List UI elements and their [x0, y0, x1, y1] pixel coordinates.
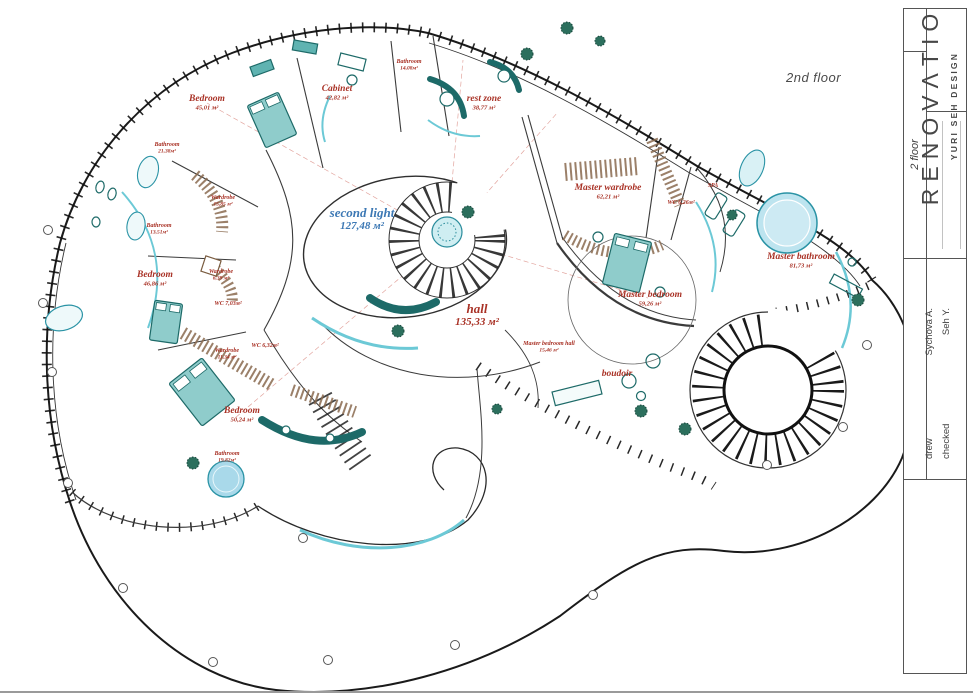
survey-marker — [44, 226, 53, 235]
survey-marker — [64, 479, 73, 488]
plant-icon — [392, 325, 404, 337]
floor-note: 2nd floor — [786, 70, 841, 85]
titleblock-drew-row: drew Sychova A. — [924, 266, 937, 471]
room-label: WC 6,32м² — [251, 343, 278, 349]
stair-column — [432, 217, 462, 247]
survey-marker — [39, 299, 48, 308]
room-label: Bathroom21,38м² — [153, 142, 179, 155]
room-label: WC 7,03м² — [214, 301, 241, 307]
table-icon — [326, 434, 334, 442]
brand-name: RENOVΛTIO — [917, 7, 944, 205]
room-label: WC 6,26м² — [667, 200, 694, 206]
room-label: SPA — [708, 183, 719, 189]
room-label: Wardrobe11,34 м² — [215, 348, 240, 361]
survey-marker — [119, 584, 128, 593]
plant-icon — [635, 405, 647, 417]
titleblock-rule — [960, 121, 961, 249]
survey-marker — [863, 341, 872, 350]
brand-logo: RENOVΛTIO — [916, 15, 944, 197]
room-label: Bathroom19,82м² — [213, 451, 239, 464]
stair-inner — [724, 346, 812, 434]
survey-marker — [48, 368, 57, 377]
plant-icon — [679, 423, 691, 435]
room-label: boudoir — [602, 369, 633, 379]
drew-value: Sychova A. — [924, 308, 937, 356]
plant-icon — [187, 457, 199, 469]
survey-marker — [839, 423, 848, 432]
room-label: Bathroom14,08м² — [395, 59, 421, 72]
plant-icon — [492, 404, 502, 414]
titleblock-checked-row: checked Seh Y. — [941, 266, 954, 471]
title-block: 2 floor drew Sychova A. checked Seh Y. R… — [903, 8, 967, 674]
bed-icon — [149, 300, 182, 344]
table-icon — [498, 70, 510, 82]
checked-value: Seh Y. — [941, 308, 954, 335]
room-label: Bathroom13,51м² — [145, 223, 171, 236]
table-icon — [440, 92, 454, 106]
brand-subtitle-text: YURI SEH DESIGN — [949, 52, 959, 160]
spa-tub — [734, 146, 770, 190]
sheet-frame-bottom — [0, 691, 973, 693]
floor-plan-svg: Bedroom45,01 м²Cabinet42,82 м²Bathroom14… — [0, 0, 973, 700]
survey-marker — [299, 534, 308, 543]
plant-icon — [727, 210, 737, 220]
room-label: Wardrobe15,85 м² — [211, 195, 236, 208]
plant-icon — [462, 206, 474, 218]
titleblock-divider — [904, 258, 966, 259]
plant-icon — [852, 294, 864, 306]
plant-icon — [561, 22, 573, 34]
survey-marker — [589, 591, 598, 600]
plant-icon — [521, 48, 533, 60]
checked-label: checked — [941, 424, 954, 459]
table-icon — [282, 426, 290, 434]
survey-marker — [763, 461, 772, 470]
survey-marker — [324, 656, 333, 665]
survey-marker — [451, 641, 460, 650]
master-bath-pool-inner — [764, 200, 810, 246]
survey-marker — [209, 658, 218, 667]
drew-label: drew — [924, 438, 937, 459]
drawing-sheet: Bedroom45,01 м²Cabinet42,82 м²Bathroom14… — [0, 0, 973, 700]
brand-subtitle: YURI SEH DESIGN — [948, 15, 960, 197]
room-label: Cabinet42,82 м² — [322, 84, 353, 102]
titleblock-divider — [904, 479, 966, 480]
nightstand — [593, 232, 603, 242]
plant-icon — [595, 36, 605, 46]
